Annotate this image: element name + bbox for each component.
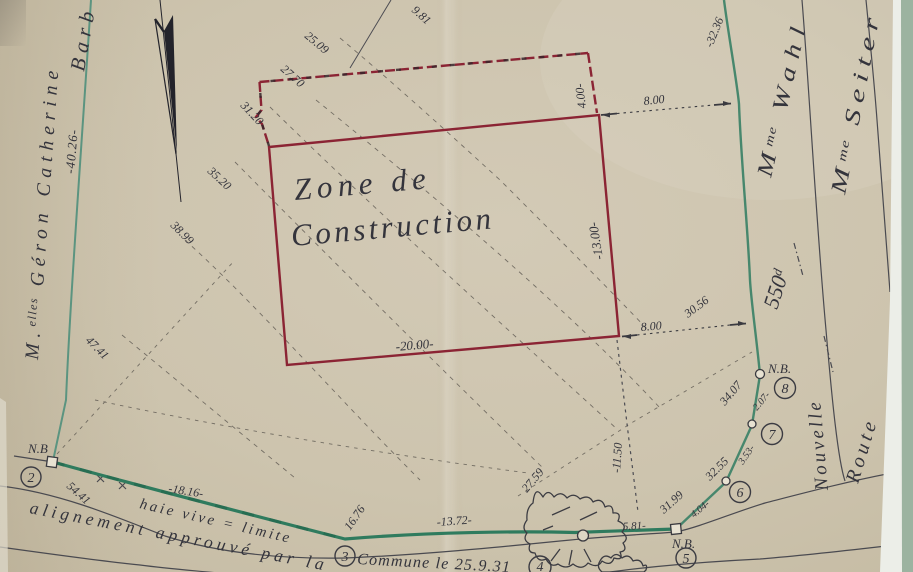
svg-text:8: 8: [782, 382, 789, 397]
svg-text:-11.50: -11.50: [609, 442, 625, 473]
svg-text:5: 5: [683, 552, 690, 567]
svg-text:-13.72-: -13.72-: [436, 513, 472, 529]
svg-text:3: 3: [341, 550, 349, 565]
svg-text:4: 4: [537, 560, 544, 572]
svg-text:8.00: 8.00: [643, 92, 665, 108]
svg-text:2: 2: [28, 471, 35, 486]
svg-text:N.B: N.B: [27, 441, 48, 456]
svg-text:5.81-: 5.81-: [623, 520, 647, 533]
svg-text:6: 6: [737, 486, 744, 501]
svg-text:N.B.: N.B.: [767, 361, 791, 376]
svg-text:7: 7: [769, 428, 777, 443]
svg-text:8.00: 8.00: [640, 318, 662, 334]
